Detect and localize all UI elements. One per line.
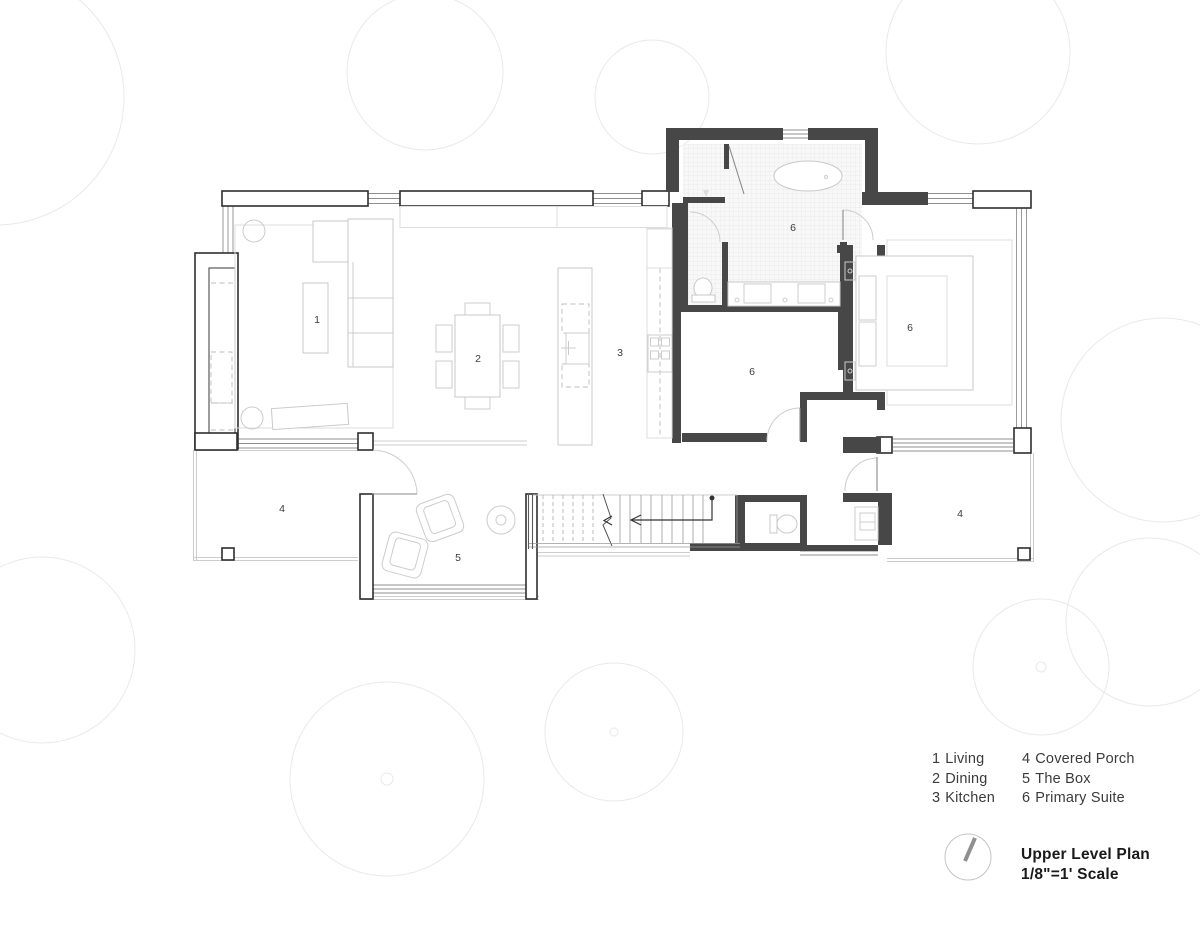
toilet-tank (770, 515, 777, 533)
fridge (647, 229, 672, 268)
legend-item: 2Dining (932, 770, 1022, 790)
room-label-porch-left: 4 (279, 503, 285, 515)
legend-label: Kitchen (945, 790, 995, 806)
legend-num: 3 (932, 790, 940, 806)
sofa (348, 219, 393, 367)
powder-laundry-fixtures (770, 507, 878, 540)
toilet (777, 515, 797, 533)
legend-label: Covered Porch (1035, 751, 1134, 767)
sheet: 1 2 3 6 6 6 5 4 4 1Living 2Dining 3Kitch… (0, 0, 1200, 927)
legend-label: Primary Suite (1035, 790, 1125, 806)
side-table (487, 506, 515, 534)
room-label-kitchen: 3 (617, 347, 623, 359)
kitchen-island (558, 268, 592, 445)
kitchen-fixtures (400, 207, 672, 446)
north-cabinets (400, 207, 667, 228)
legend-item: 6Primary Suite (1022, 789, 1135, 809)
armchair (381, 531, 430, 580)
room-label-dining: 2 (475, 353, 481, 365)
room-legend: 1Living 2Dining 3Kitchen 4Covered Porch … (932, 750, 1135, 809)
bench (271, 403, 348, 429)
legend-num: 1 (932, 751, 940, 767)
legend-label: Living (945, 751, 984, 767)
counter (647, 228, 672, 438)
room-label-bathroom: 6 (790, 222, 796, 234)
room-label-box: 5 (455, 552, 461, 564)
legend-label: The Box (1035, 771, 1090, 787)
room-label-closet: 6 (749, 366, 755, 378)
page-title: Upper Level Plan (1021, 845, 1150, 865)
room-label-porch-right: 4 (957, 508, 963, 520)
stairs (528, 493, 740, 549)
scale-note: 1/8"=1' Scale (1021, 865, 1150, 885)
vanity (728, 282, 840, 306)
porch-edges (193, 450, 1034, 600)
legend-column-1: 1Living 2Dining 3Kitchen (932, 750, 1022, 809)
bedroom-furniture (845, 240, 1012, 405)
legend-num: 2 (932, 771, 940, 787)
north-arrow-icon (940, 830, 996, 886)
legend-column-2: 4Covered Porch 5The Box 6Primary Suite (1022, 750, 1135, 809)
plant (243, 220, 265, 242)
legend-label: Dining (945, 771, 987, 787)
room-label-living: 1 (314, 314, 320, 326)
legend-item: 1Living (932, 750, 1022, 770)
room-label-bedroom: 6 (907, 322, 913, 334)
plant (241, 407, 263, 429)
legend-item: 4Covered Porch (1022, 750, 1135, 770)
title-block: Upper Level Plan 1/8"=1' Scale (1021, 845, 1150, 884)
legend-item: 3Kitchen (932, 789, 1022, 809)
legend-num: 6 (1022, 790, 1030, 806)
legend-num: 5 (1022, 771, 1030, 787)
armchair (414, 492, 465, 543)
legend-item: 5The Box (1022, 770, 1135, 790)
box-furniture (381, 492, 515, 579)
sofa-chaise (313, 221, 353, 262)
bathtub (774, 161, 842, 191)
legend-num: 4 (1022, 751, 1030, 767)
